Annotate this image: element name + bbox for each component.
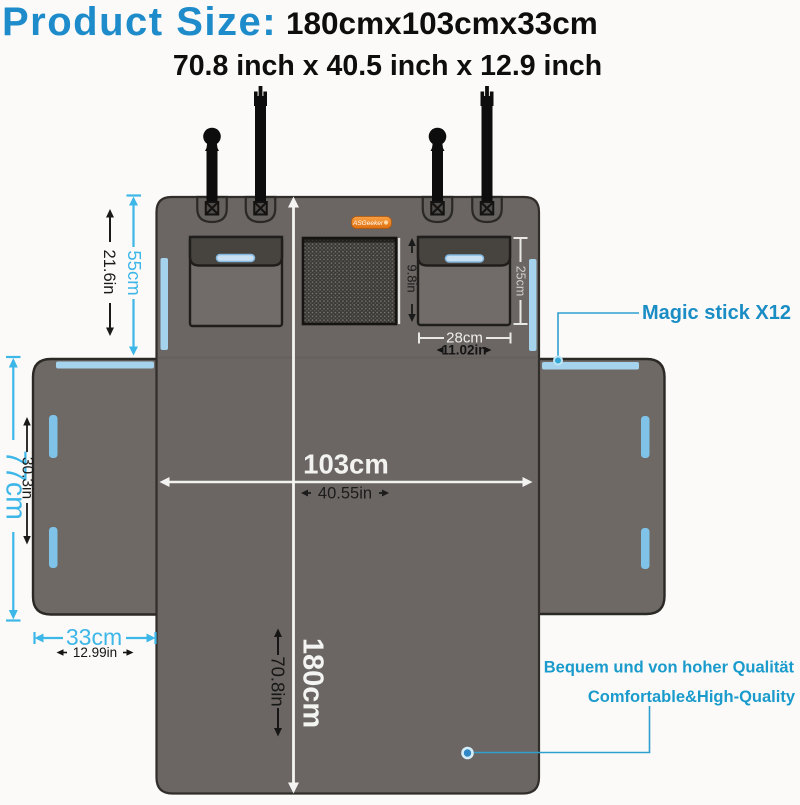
svg-text:12.99in: 12.99in bbox=[73, 645, 117, 660]
svg-text:70.8 inch x 40.5 inch x 12.9 i: 70.8 inch x 40.5 inch x 12.9 inch bbox=[173, 50, 602, 82]
svg-text:21.6in: 21.6in bbox=[100, 250, 118, 295]
svg-text:ASGeeker: ASGeeker bbox=[352, 220, 384, 227]
svg-text:Magic stick X12: Magic stick X12 bbox=[642, 302, 791, 324]
svg-text:Bequem und von hoher Qualität: Bequem und von hoher Qualität bbox=[544, 659, 795, 677]
svg-text:30.3in: 30.3in bbox=[19, 457, 36, 499]
svg-text:25cm: 25cm bbox=[514, 266, 528, 297]
svg-text:40.55in: 40.55in bbox=[318, 485, 372, 503]
svg-text:180cm: 180cm bbox=[297, 638, 329, 728]
svg-text:9.8in: 9.8in bbox=[405, 264, 420, 292]
svg-text:Product Size:: Product Size: bbox=[2, 0, 277, 44]
svg-text:55cm: 55cm bbox=[124, 250, 145, 295]
svg-text:Comfortable&High-Quality: Comfortable&High-Quality bbox=[588, 688, 796, 706]
svg-text:11.02in: 11.02in bbox=[441, 343, 486, 358]
svg-text:180cmx103cmx33cm: 180cmx103cmx33cm bbox=[286, 5, 598, 41]
svg-text:103cm: 103cm bbox=[303, 449, 389, 480]
svg-text:70.8in: 70.8in bbox=[268, 656, 289, 706]
